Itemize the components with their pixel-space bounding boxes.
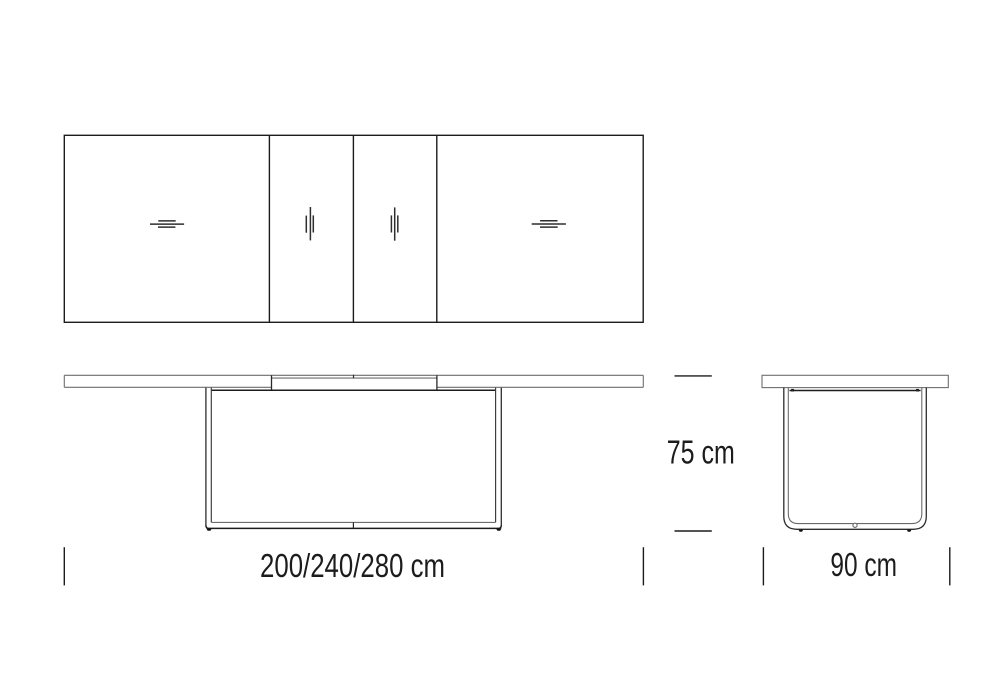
svg-text:90 cm: 90 cm xyxy=(830,546,897,583)
svg-text:75 cm: 75 cm xyxy=(667,434,735,471)
svg-text:200/240/280 cm: 200/240/280 cm xyxy=(260,547,445,584)
